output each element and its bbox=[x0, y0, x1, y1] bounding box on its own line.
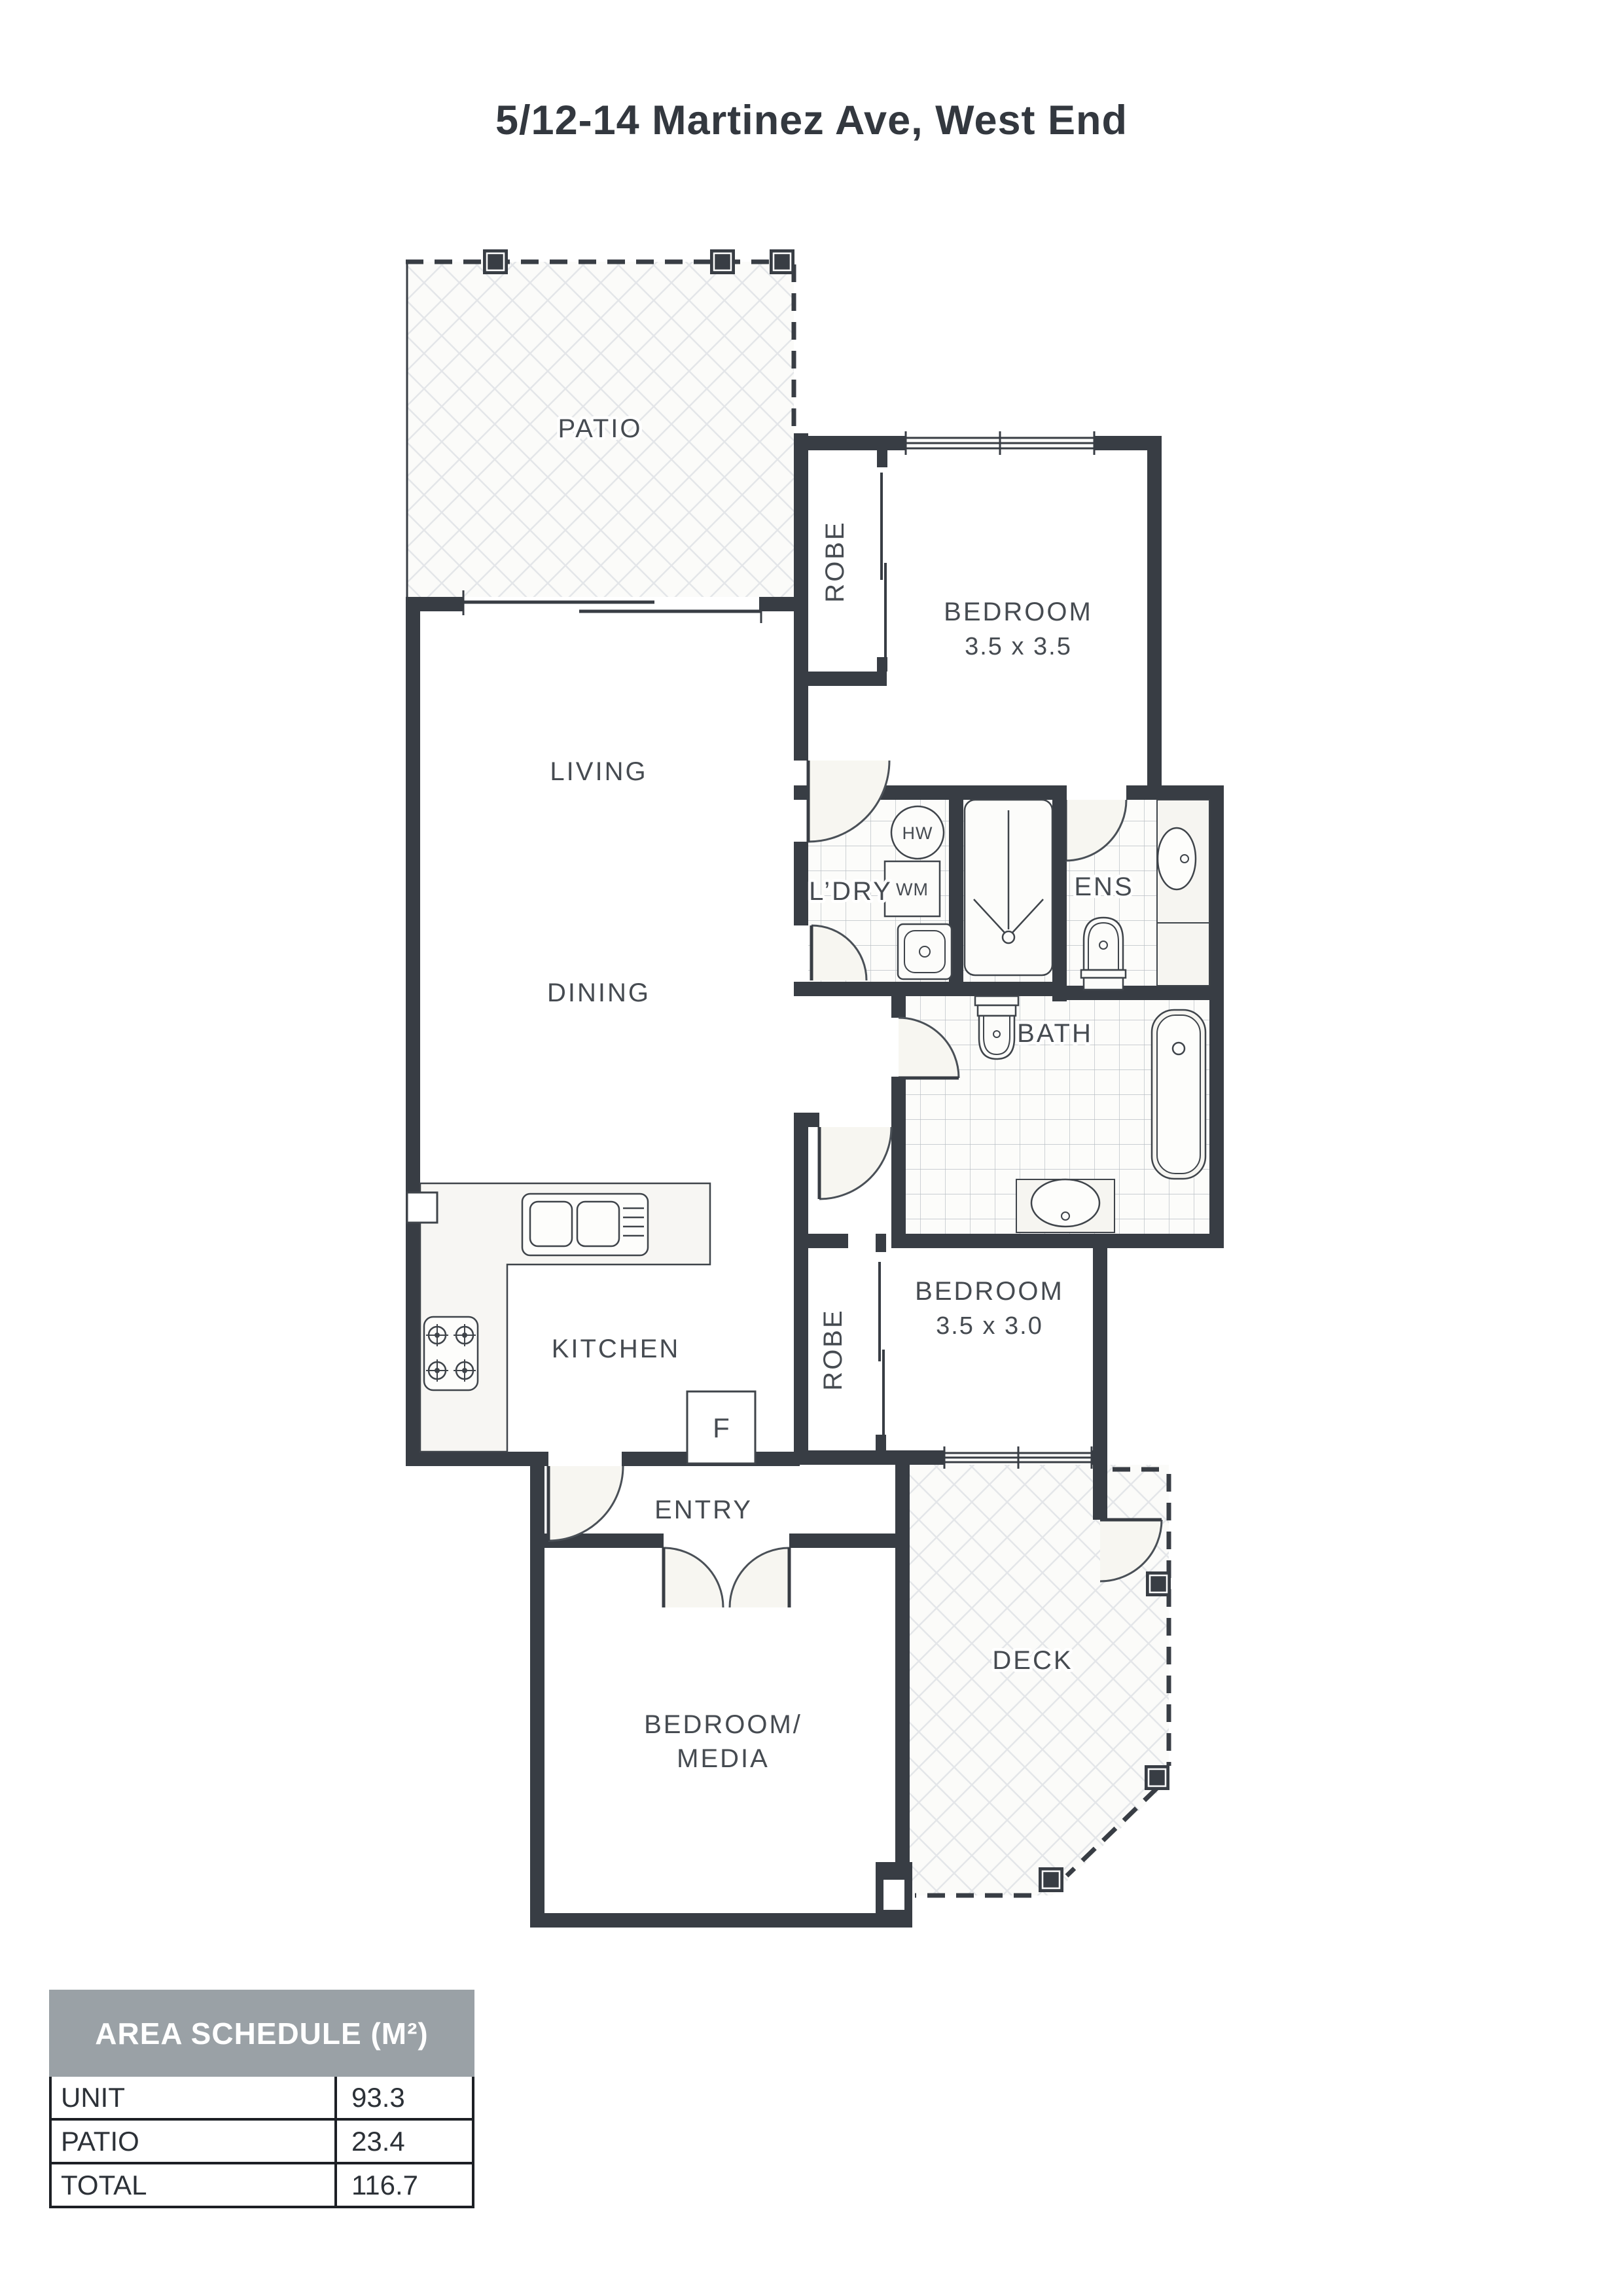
bath-toilet bbox=[975, 996, 1018, 1059]
area-schedule-header: AREA SCHEDULE (M²) bbox=[49, 1990, 474, 2077]
robe2-label: ROBE bbox=[819, 1308, 847, 1390]
area-schedule-rows: UNIT 93.3 PATIO 23.4 TOTAL 116.7 bbox=[49, 2077, 474, 2208]
bedroom1-window bbox=[906, 431, 1094, 455]
fridge: F bbox=[687, 1391, 755, 1463]
deck-pier bbox=[876, 1862, 912, 1928]
area-row-label: TOTAL bbox=[52, 2164, 334, 2206]
bedroom2-door bbox=[819, 1127, 891, 1199]
bedroom2-dims: 3.5 x 3.0 bbox=[936, 1312, 1043, 1340]
area-row-value: 93.3 bbox=[334, 2077, 472, 2118]
area-row-label: PATIO bbox=[52, 2121, 334, 2162]
cooktop bbox=[424, 1317, 478, 1390]
bedroom-media-label-line2: MEDIA bbox=[677, 1744, 770, 1773]
table-row: UNIT 93.3 bbox=[52, 2077, 472, 2118]
floor-plan-page: 5/12-14 Martinez Ave, West End bbox=[0, 0, 1623, 2296]
bath-label: BATH bbox=[1017, 1019, 1093, 1048]
bedroom-media-label-line1: BEDROOM/ bbox=[644, 1710, 802, 1739]
area-row-label: UNIT bbox=[52, 2077, 334, 2118]
floor-plan: F HW WM bbox=[0, 0, 1623, 2296]
ensuite-vanity bbox=[1157, 800, 1209, 986]
living-label: LIVING bbox=[550, 757, 647, 786]
patio-label: PATIO bbox=[558, 414, 642, 443]
kitchen-fixtures: F bbox=[407, 1183, 755, 1463]
media-double-doors bbox=[664, 1548, 789, 1607]
area-row-value: 23.4 bbox=[334, 2121, 472, 2162]
dining-label: DINING bbox=[547, 978, 651, 1007]
shower bbox=[965, 800, 1052, 975]
deck-label: DECK bbox=[992, 1646, 1073, 1675]
ensuite-label: ENS bbox=[1074, 872, 1133, 901]
bedroom1-label: BEDROOM bbox=[944, 598, 1093, 626]
bedroom1-dims: 3.5 x 3.5 bbox=[965, 633, 1072, 660]
bedroom2-label: BEDROOM bbox=[915, 1277, 1064, 1306]
bath-vanity bbox=[1016, 1179, 1115, 1232]
laundry-tub bbox=[898, 924, 952, 979]
area-schedule: AREA SCHEDULE (M²) UNIT 93.3 PATIO 23.4 … bbox=[49, 1990, 474, 2208]
bathtub bbox=[1152, 1010, 1205, 1179]
hot-water-label: HW bbox=[902, 823, 933, 843]
robe1-label: ROBE bbox=[821, 520, 849, 602]
kitchen-label: KITCHEN bbox=[552, 1335, 681, 1363]
entry-door bbox=[548, 1466, 623, 1541]
fridge-label: F bbox=[713, 1412, 730, 1443]
area-row-value: 116.7 bbox=[334, 2164, 472, 2206]
robe1-sliding-door bbox=[882, 473, 885, 669]
laundry-label: L’DRY bbox=[809, 877, 893, 906]
kitchen-sink bbox=[522, 1194, 648, 1255]
robe2-sliding-door bbox=[880, 1262, 883, 1437]
ensuite-toilet bbox=[1081, 918, 1126, 990]
table-row: TOTAL 116.7 bbox=[52, 2162, 472, 2206]
entry-label: ENTRY bbox=[654, 1496, 753, 1524]
washing-machine-label: WM bbox=[896, 880, 929, 899]
kitchen-wall-return bbox=[407, 1193, 437, 1223]
table-row: PATIO 23.4 bbox=[52, 2118, 472, 2162]
